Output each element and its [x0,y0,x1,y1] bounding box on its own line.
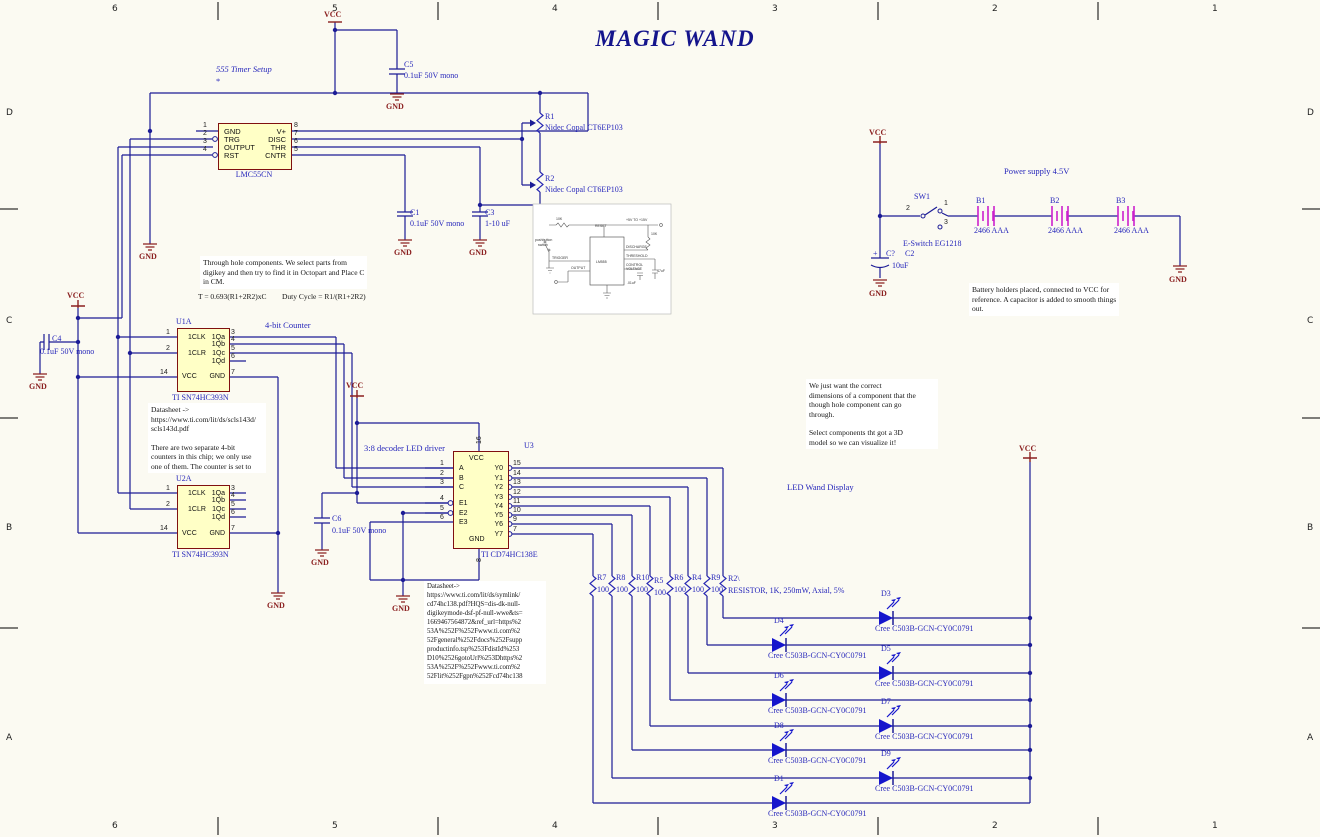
gnd-label: GND [469,248,487,257]
note-line: model so we can visualize it! [809,438,935,448]
ref-c1: C1 [410,208,419,217]
zone-row: C [6,316,12,326]
part-u2a: TI SN74HC393N [172,550,229,559]
pin-label: 1Qc [212,506,225,513]
val-b1: 2466 AAA [974,226,1009,235]
note-line: https://www.ti.com/lit/ds/scls143d/ [151,415,263,425]
pin-number: 3 [231,485,235,492]
val-r4: 100 [692,585,704,594]
pot-r2 [537,172,543,192]
pin-label: GND [209,530,225,537]
val-r6: 100 [674,585,686,594]
pin-number: 3 [203,138,207,145]
gnd-label: GND [386,102,404,111]
val-r2-1k: RESISTOR, 1K, 250mW, Axial, 5% [728,586,844,595]
pin-label: Y0 [494,465,503,472]
pin-label: GND [469,536,485,543]
pin-number: 2 [440,470,444,477]
note-line: in CM. [203,277,364,287]
note-line: digikeymode-dsf-pf-null-wwe&ts= [427,610,543,619]
pin-number: 3 [231,329,235,336]
ref-r10: R10 [636,573,649,582]
pin-number: 1 [440,460,444,467]
chip-u3[interactable]: VCC A B C E1 E2 E3 Y0 Y1 Y2 Y3 Y4 Y5 Y6 … [453,451,509,549]
pin-number: 14 [160,525,168,532]
zone-row: C [1307,316,1313,326]
zone-col: 1 [1212,821,1218,831]
inset-label: TRIGGER [552,256,568,260]
pin-number: 1 [166,485,170,492]
ref-sw1: SW1 [914,192,930,201]
ref-r6: R6 [674,573,683,582]
note-line: 53A%252F%252Fwww.ti.com%2 [427,628,543,637]
pin-label: 1CLR [188,506,206,513]
pin-label: B [459,475,464,482]
pin-label: VCC [182,373,197,380]
vcc-label: VCC [869,128,886,137]
pin-number: 3 [440,479,444,486]
pin-number: 8 [294,122,298,129]
val-r9: 100 [711,585,723,594]
inset-label: 10K [556,217,563,221]
note-line: through. [809,410,935,420]
battery-b3 [1118,206,1134,226]
pin-number: 10 [513,507,521,514]
led-d8 [772,729,794,757]
note-line: though hole component can go [809,400,935,410]
note-line: digikey and then try to find it in Octop… [203,268,364,278]
pin-label: 1Qb [212,341,225,348]
pin-number: 15 [513,460,521,467]
part-d3: Cree C503B-GCN-CY0C0791 [875,624,973,633]
pin-label: Y4 [494,503,503,510]
note-line: reference. A capacitor is added to smoot… [972,295,1116,305]
pin-label: Y3 [494,494,503,501]
battery-b1 [978,206,994,226]
schematic-sheet: 6 5 4 3 2 1 6 5 4 3 2 1 D C B A D C B A … [0,0,1320,837]
pin-number: 6 [294,138,298,145]
note-datasheet-138[interactable]: Datasheet-> https://www.ti.com/lit/ds/sy… [424,581,546,684]
ref-d8: D8 [774,721,784,730]
part-d7: Cree C503B-GCN-CY0C0791 [875,732,973,741]
pin-number: 9 [513,516,517,523]
note-line: There are two separate 4-bit [151,443,263,453]
ref-r9: R9 [711,573,720,582]
pin-label: Y2 [494,484,503,491]
pin-label: 1CLR [188,350,206,357]
pin-label: CNTR [265,151,286,160]
pin-label: E1 [459,500,468,507]
led-d9 [879,757,901,785]
inset-label: 10K [651,232,658,236]
pin-number: 2 [166,501,170,508]
note-line: We just want the correct [809,381,935,391]
ref-r5: R5 [654,576,663,585]
zone-col: 2 [992,821,998,831]
pin-number: 5 [231,345,235,352]
pin-number: 1 [203,122,207,129]
pin-label: 1Qa [212,334,225,341]
note-line: cd74hc138.pdf?HQS=dis-dk-null- [427,601,543,610]
pin-number: 7 [231,525,235,532]
note-line: one of them. The counter is set to [151,462,263,472]
pin-number: 6 [231,509,235,516]
ref-b3: B3 [1116,196,1125,205]
pin-label: A [459,465,464,472]
ref-b2: B2 [1050,196,1059,205]
note-line: Select components tht got a 3D [809,428,935,438]
note-led-wand: LED Wand Display [787,482,854,492]
inset-label: switch [538,243,548,247]
part-d5: Cree C503B-GCN-CY0C0791 [875,679,973,688]
note-line: Datasheet -> [151,405,263,415]
note-timer-setup: 555 Timer Setup [216,64,272,74]
note-line [151,434,263,443]
pin-number: 6 [440,514,444,521]
note-4bit-counter: 4-bit Counter [265,320,311,330]
note-line: Battery holders placed, connected to VCC… [972,285,1116,295]
gnd-label: GND [311,558,329,567]
resistor-r8 [609,576,615,596]
zone-col: 3 [772,821,778,831]
led-d3 [879,597,901,625]
pin-number: 2 [166,345,170,352]
inset-label: LM555 [596,260,607,264]
zone-row: A [1307,733,1313,743]
part-r2: Nidec Copal CT6EP103 [545,185,623,194]
chip-u1a[interactable]: 1CLK 1CLR VCC 1Qa 1Qb 1Qc 1Qd GND [177,328,230,392]
val-c2: 10uF [892,261,908,270]
ref-c2a: C? [886,249,895,258]
val-r7: 100 [597,585,609,594]
battery-b2 [1052,206,1068,226]
zone-row: B [1307,523,1313,533]
pin-label: Y5 [494,512,503,519]
pin-number: 2 [203,130,207,137]
resistor-r10 [629,576,635,596]
chip-lmc555[interactable]: GND TRG OUTPUT RST V+ DISC THR CNTR [218,123,292,170]
zone-col: 6 [112,4,118,14]
pin-number: 8 [476,558,483,562]
pin-number: 2 [906,205,910,212]
note-line: Through hole components. We select parts… [203,258,364,268]
ref-r2: R2 [545,174,554,183]
note-dimensions[interactable]: We just want the correct dimensions of a… [806,379,938,449]
val-c6: 0.1uF 50V mono [332,526,386,535]
note-line: out. [972,304,1116,314]
pin-label: 1Qd [212,514,225,521]
note-power-supply: Power supply 4.5V [1004,166,1069,176]
ref-c2b: C2 [905,249,914,258]
zone-col: 3 [772,4,778,14]
val-r5: 100 [654,588,666,597]
pin-number: 12 [513,489,521,496]
val-b2: 2466 AAA [1048,226,1083,235]
ref-c5: C5 [404,60,413,69]
zone-row: B [6,523,12,533]
gnd-label: GND [139,252,157,261]
note-asterisk: * [216,76,220,86]
ref-u3: U3 [524,441,534,450]
note-line: 52Flit%252Fgpn%252Fcd74hc138 [427,673,543,682]
pin-number: 6 [231,353,235,360]
led-d5 [879,652,901,680]
part-d1: Cree C503B-GCN-CY0C0791 [768,809,866,818]
inset-label: .01uF [627,281,636,285]
ref-d1: D1 [774,774,784,783]
val-b3: 2466 AAA [1114,226,1149,235]
pin-number: 1 [944,200,948,207]
ref-d5: D5 [881,644,891,653]
pin-label: RST [224,151,239,160]
resistor-r6 [667,576,673,596]
pot-r1 [537,113,543,133]
note-line: 53A%252F%252Fwww.ti.com%2 [427,664,543,673]
pin-label: E2 [459,510,468,517]
pin-label: 1Qd [212,358,225,365]
zone-col: 6 [112,821,118,831]
pin-number: 3 [944,219,948,226]
part-u1a: TI SN74HC393N [172,393,229,402]
ref-r8: R8 [616,573,625,582]
zone-col: 4 [552,4,558,14]
pin-label: 1CLK [188,490,206,497]
ref-r7: R7 [597,573,606,582]
ref-c4: C4 [52,334,61,343]
note-formula-t: T = 0.693(R1+2R2)xC [198,292,267,301]
pin-label: VCC [182,530,197,537]
ref-d6: D6 [774,671,784,680]
val-c1: 0.1uF 50V mono [410,219,464,228]
inset-label: RESET [595,224,608,228]
ref-d4: D4 [774,616,784,625]
note-line: productinfo.tsp%253FdistId%253 [427,646,543,655]
part-d6: Cree C503B-GCN-CY0C0791 [768,706,866,715]
pin-label: 1Qc [212,350,225,357]
gnd-label: GND [1169,275,1187,284]
inset-label: 47uF [657,269,665,273]
switch-sw1[interactable] [921,207,942,229]
note-line [809,419,935,428]
inset-label: VOLTAGE [626,267,643,271]
pin-number: 14 [160,369,168,376]
note-line: D10%2526gotoUrl%253Dhttps%2 [427,655,543,664]
zone-col: 4 [552,821,558,831]
pin-label: 1Qa [212,490,225,497]
pin-number: 16 [476,436,483,444]
pin-number: 4 [231,336,235,343]
val-c5: 0.1uF 50V mono [404,71,458,80]
zone-row: D [6,108,13,118]
inset-label: OUTPUT [571,266,586,270]
pin-label: Y1 [494,475,503,482]
note-line: scls143d.pdf [151,424,263,434]
pin-label: C [459,484,464,491]
pin-label: VCC [469,455,484,462]
note-line: 52Fgeneral%252Fdocs%252Fsupp [427,637,543,646]
part-sw1: E-Switch EG1218 [903,239,961,248]
gnd-label: GND [267,601,285,610]
led-d6 [772,679,794,707]
zone-col: 5 [332,821,338,831]
pin-number: 4 [440,495,444,502]
gnd-label: GND [869,289,887,298]
part-d8: Cree C503B-GCN-CY0C0791 [768,756,866,765]
pin-number: 4 [231,492,235,499]
part-u3: TI CD74HC138E [481,550,538,559]
gnd-label: GND [29,382,47,391]
gnd-label: GND [394,248,412,257]
pin-number: 5 [294,146,298,153]
led-d4 [772,624,794,652]
pin-label: Y6 [494,521,503,528]
val-r10: 100 [636,585,648,594]
pin-number: 7 [231,369,235,376]
ref-u1a: U1A [176,317,192,326]
pin-number: 1 [166,329,170,336]
zone-col: 2 [992,4,998,14]
ref-c6: C6 [332,514,341,523]
pin-number: 11 [513,498,520,505]
note-line: dimensions of a component that the [809,391,935,401]
note-battery[interactable]: Battery holders placed, connected to VCC… [969,283,1119,316]
inset-label: THRESHOLD [626,254,648,258]
ref-c3: C3 [485,208,494,217]
resistor-r7 [590,576,596,596]
led-d1 [772,782,794,810]
ref-b1: B1 [976,196,985,205]
pin-number: 5 [440,505,444,512]
chip-u2a[interactable]: 1CLK 1CLR VCC 1Qa 1Qb 1Qc 1Qd GND [177,485,230,549]
note-line: 1669467564872&ref_url=https%2 [427,619,543,628]
gnd-label: GND [392,604,410,613]
led-d7 [879,705,901,733]
note-through-hole[interactable]: Through hole components. We select parts… [200,256,367,289]
val-c3: 1-10 uF [485,219,510,228]
ref-d9: D9 [881,749,891,758]
pin-label: E3 [459,519,468,526]
note-line: https://www.ti.com/lit/ds/symlink/ [427,592,543,601]
pin-number: 13 [513,479,521,486]
pin-number: 7 [294,130,298,137]
pin-number: 4 [203,146,207,153]
ref-d7: D7 [881,697,891,706]
note-decoder: 3:8 decoder LED driver [364,443,445,453]
note-datasheet-393[interactable]: Datasheet -> https://www.ti.com/lit/ds/s… [148,403,266,473]
val-r8: 100 [616,585,628,594]
vcc-label: VCC [1019,444,1036,453]
note-line: counters in this chip; we only use [151,452,263,462]
pin-number: 14 [513,470,521,477]
pin-label: Y7 [494,531,503,538]
zone-col: 1 [1212,4,1218,14]
pin-label: 1CLK [188,334,206,341]
part-d9: Cree C503B-GCN-CY0C0791 [875,784,973,793]
pin-label: GND [209,373,225,380]
part-name-lmc555: LMC55CN [218,170,290,179]
inset-label: +5V TO +15V [626,218,648,222]
inset-label: pushbutton [535,238,552,242]
resistor-r9 [704,576,710,596]
val-c4: 0.1uF 50V mono [40,347,94,356]
vcc-label: VCC [346,381,363,390]
ref-u2a: U2A [176,474,192,483]
part-r1: Nidec Copal CT6EP103 [545,123,623,132]
plus-c2: + [873,249,878,258]
ref-d3: D3 [881,589,891,598]
pin-label: 1Qb [212,497,225,504]
ref-r1: R1 [545,112,554,121]
zone-row: D [1307,108,1314,118]
page-title: MAGIC WAND [560,26,790,52]
vcc-label: VCC [67,291,84,300]
pin-number: 5 [231,501,235,508]
note-formula-duty: Duty Cycle = R1/(R1+2R2) [282,292,366,301]
vcc-label: VCC [324,10,341,19]
part-d4: Cree C503B-GCN-CY0C0791 [768,651,866,660]
ref-r4: R4 [692,573,701,582]
pin-number: 7 [513,526,517,533]
inset-label: DISCHARGE [626,245,647,249]
note-line: Datasheet-> [427,583,543,592]
datasheet-inset-555[interactable]: RESET TRIGGER OUTPUT DISCHARGE THRESHOLD… [533,204,671,314]
zone-row: A [6,733,12,743]
ref-r2-1k: R2\ [728,574,740,583]
